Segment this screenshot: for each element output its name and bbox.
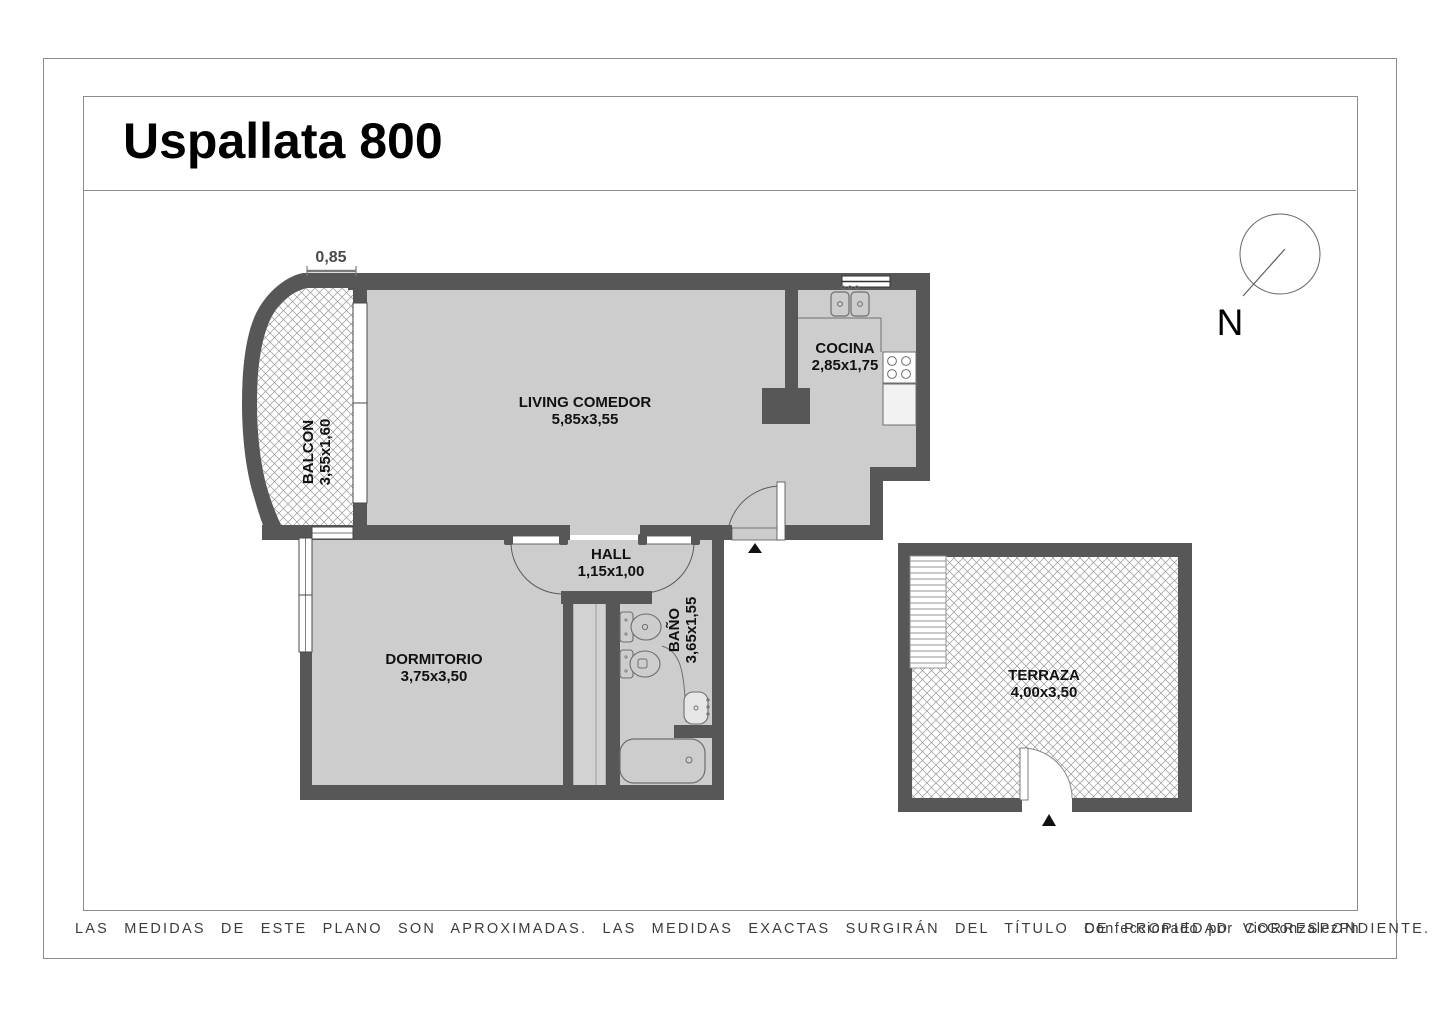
room-size: 5,85x3,55 xyxy=(519,411,652,428)
room-name: HALL xyxy=(578,546,645,563)
bidet-icon xyxy=(620,612,661,642)
room-name: DORMITORIO xyxy=(385,651,482,668)
room-size: 2,85x1,75 xyxy=(812,357,879,374)
room-size: 1,15x1,00 xyxy=(578,563,645,580)
terraza-entrance-triangle-icon xyxy=(1042,814,1056,826)
stove-icon xyxy=(883,352,916,383)
ladder-icon xyxy=(910,556,946,668)
room-label-bano: BAÑO 3,65x1,55 xyxy=(666,597,700,664)
room-label-cocina: COCINA 2,85x1,75 xyxy=(812,340,879,374)
room-size: 4,00x3,50 xyxy=(1008,684,1080,701)
room-label-balcon: BALCON 3,55x1,60 xyxy=(300,419,334,486)
room-size: 3,65x1,55 xyxy=(683,597,700,664)
floor-plan-canvas xyxy=(0,0,1440,1019)
balcony-structure xyxy=(242,273,362,540)
room-label-terraza: TERRAZA 4,00x3,50 xyxy=(1008,667,1080,701)
north-label: N xyxy=(1217,302,1244,344)
toilet-icon xyxy=(620,650,660,678)
floorplan-page: { "page": { "title": "Uspallata 800" }, … xyxy=(0,0,1440,1019)
room-name: BAÑO xyxy=(666,597,683,664)
dimension-label: 0,85 xyxy=(315,249,346,267)
room-label-dormitorio: DORMITORIO 3,75x3,50 xyxy=(385,651,482,685)
north-arrow-icon xyxy=(1240,214,1320,296)
entrance-triangle-icon xyxy=(748,543,762,553)
room-name: BALCON xyxy=(300,419,317,486)
footer-credit: Confeccionado por VicGonzalezPh xyxy=(1084,921,1360,937)
bathtub-icon xyxy=(620,739,705,783)
room-size: 3,75x3,50 xyxy=(385,668,482,685)
room-name: COCINA xyxy=(812,340,879,357)
room-size: 3,55x1,60 xyxy=(317,419,334,486)
room-label-living: LIVING COMEDOR 5,85x3,55 xyxy=(519,394,652,428)
room-name: TERRAZA xyxy=(1008,667,1080,684)
room-name: LIVING COMEDOR xyxy=(519,394,652,411)
room-label-hall: HALL 1,15x1,00 xyxy=(578,546,645,580)
